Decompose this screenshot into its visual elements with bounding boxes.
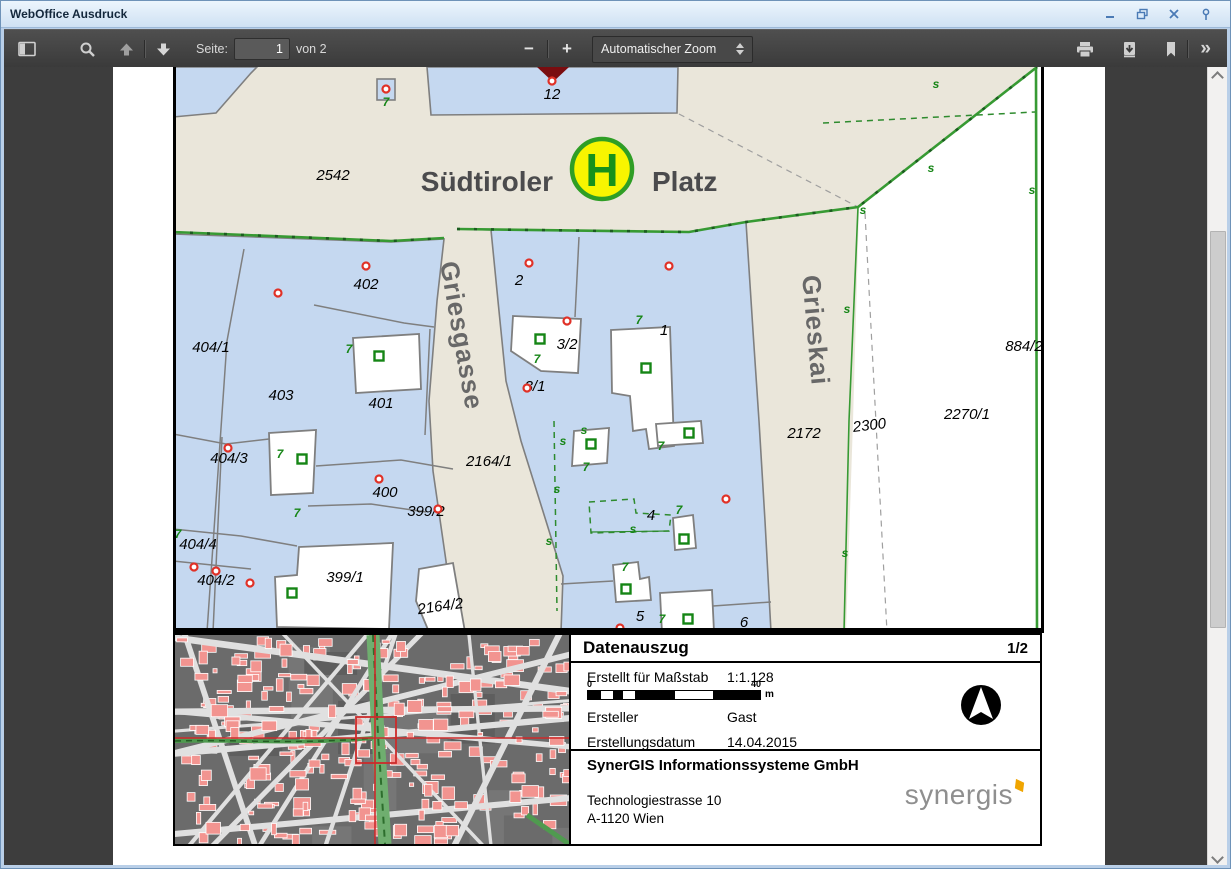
toolbar-separator <box>547 40 549 58</box>
pin-button[interactable] <box>1197 6 1215 22</box>
scale-unit: m <box>765 689 774 700</box>
panel-title: Datenauszug <box>583 638 689 658</box>
address-line-1: Technologiestrasse 10 <box>587 793 721 808</box>
scrollbar-thumb[interactable] <box>1210 231 1226 628</box>
sidebar-icon <box>18 41 37 57</box>
panel-divider <box>571 749 1040 751</box>
point-marker <box>723 496 730 503</box>
parcel-label: 5 <box>636 608 645 625</box>
survey-point-marker <box>536 335 545 344</box>
point-marker <box>191 564 198 571</box>
pin-icon <box>1200 8 1212 21</box>
logo-leaf-icon <box>1015 779 1024 792</box>
page-up-button[interactable] <box>114 37 139 62</box>
minimize-button[interactable] <box>1101 6 1119 22</box>
parcel-label: 4 <box>647 507 655 524</box>
survey-point-marker <box>684 615 693 624</box>
survey-point-marker <box>680 535 689 544</box>
land-use-symbol: s <box>860 203 867 217</box>
zoom-out-button[interactable]: − <box>516 38 542 60</box>
page-label: Seite: <box>196 42 228 56</box>
parcel-label: 1 <box>660 322 668 339</box>
parcel-label: 404/3 <box>210 450 248 467</box>
parcel-label: 399/1 <box>326 569 364 586</box>
date-label: Erstellungsdatum <box>587 734 727 750</box>
point-marker <box>524 385 531 392</box>
land-use-symbol: s <box>842 546 849 560</box>
survey-point-marker <box>587 440 596 449</box>
parcel-label: 404/1 <box>192 339 230 356</box>
parcel-label: 884/2 <box>1005 338 1043 355</box>
place-label-left: Südtiroler <box>421 166 553 197</box>
scroll-down-button[interactable] <box>1208 851 1227 865</box>
parcel-label: 2 <box>514 272 524 289</box>
parcel-label: 400 <box>372 484 398 501</box>
land-use-symbol: s <box>554 482 561 496</box>
print-icon <box>1075 41 1095 58</box>
land-use-symbol: s <box>844 302 851 316</box>
page-total: von 2 <box>296 42 327 56</box>
pdf-toolbar: Seite: von 2 − + Automatischer Zoom <box>4 29 1227 69</box>
land-use-symbol: s <box>928 161 935 175</box>
land-use-symbol: s <box>933 77 940 91</box>
overview-map <box>175 635 569 844</box>
point-marker <box>666 263 673 270</box>
parcel-label: 401 <box>368 395 393 412</box>
toolbar-separator <box>144 40 146 58</box>
logo-text: synergis <box>905 779 1013 810</box>
point-marker <box>225 445 232 452</box>
point-marker <box>213 568 220 575</box>
close-icon <box>1168 8 1180 20</box>
parcel-label: 2172 <box>786 425 821 442</box>
app-window: WebOffice Ausdruck <box>0 0 1231 869</box>
point-marker <box>435 506 442 513</box>
zoom-in-button[interactable]: + <box>554 38 580 60</box>
scroll-up-button[interactable] <box>1208 67 1227 83</box>
download-icon <box>1121 41 1138 58</box>
zoom-select-value: Automatischer Zoom <box>601 42 736 56</box>
survey-point-marker <box>288 589 297 598</box>
chevron-down-icon <box>1211 851 1224 864</box>
point-marker <box>383 86 390 93</box>
search-button[interactable] <box>75 37 100 62</box>
page-number-input[interactable] <box>234 38 290 60</box>
survey-point-marker <box>685 429 694 438</box>
toolbar-separator <box>1187 40 1189 58</box>
arrow-up-icon <box>118 41 135 58</box>
parcel-label: 12 <box>544 86 561 103</box>
point-marker <box>564 318 571 325</box>
place-label-right: Platz <box>652 166 717 197</box>
point-marker <box>376 476 383 483</box>
pdf-page-1: H Südtiroler Platz 2542124022404/13/23/1… <box>113 67 1105 865</box>
date-row: Erstellungsdatum 14.04.2015 <box>587 734 797 750</box>
date-value: 14.04.2015 <box>727 734 797 750</box>
land-use-symbol: s <box>1029 183 1036 197</box>
title-bar: WebOffice Ausdruck <box>1 1 1230 28</box>
creator-row: Ersteller Gast <box>587 709 757 725</box>
parcel-label: 3/2 <box>557 336 579 353</box>
parcel-label: 2164/1 <box>465 453 512 470</box>
survey-point-marker <box>375 352 384 361</box>
land-use-symbol: s <box>581 423 588 437</box>
parcel-label: 404/4 <box>179 536 217 553</box>
scale-bar: 0 40 m <box>587 679 807 700</box>
point-marker <box>526 260 533 267</box>
print-button[interactable] <box>1071 37 1099 62</box>
point-marker <box>363 263 370 270</box>
restore-icon <box>1136 8 1149 20</box>
sidebar-toggle-button[interactable] <box>14 37 41 61</box>
scale-end: 40 <box>751 679 761 689</box>
north-arrow <box>960 684 1002 731</box>
survey-point-marker <box>298 455 307 464</box>
bus-stop-logo: H <box>572 139 632 199</box>
land-use-symbol: s <box>630 522 637 536</box>
overview-map-box <box>173 633 571 846</box>
company-name: SynerGIS Informationssysteme GmbH <box>587 757 859 774</box>
info-panel: Datenauszug 1/2 Erstellt für Maßstab 1:1… <box>569 633 1042 846</box>
land-use-symbol: s <box>546 534 553 548</box>
close-button[interactable] <box>1165 6 1183 22</box>
restore-button[interactable] <box>1133 6 1151 22</box>
arrow-down-icon <box>155 41 172 58</box>
viewer-content: H Südtiroler Platz 2542124022404/13/23/1… <box>4 67 1227 865</box>
creator-value: Gast <box>727 709 757 725</box>
search-icon <box>79 41 96 58</box>
cadastral-map: H Südtiroler Platz 2542124022404/13/23/1… <box>173 67 1045 633</box>
panel-page-number: 1/2 <box>1007 640 1028 657</box>
parcel-label: 2270/1 <box>943 406 990 423</box>
point-marker <box>549 78 556 85</box>
scale-start: 0 <box>587 679 592 689</box>
download-button[interactable] <box>1117 37 1142 62</box>
zoom-select[interactable]: Automatischer Zoom <box>592 36 753 63</box>
more-tools-button[interactable]: » <box>1194 37 1217 61</box>
bus-stop-letter: H <box>585 144 618 196</box>
point-marker <box>275 290 282 297</box>
page-down-button[interactable] <box>151 37 176 62</box>
bookmark-button[interactable] <box>1160 37 1182 62</box>
window-title: WebOffice Ausdruck <box>10 7 127 21</box>
survey-point-marker <box>622 585 631 594</box>
creator-label: Ersteller <box>587 709 727 725</box>
address-line-2: A-1120 Wien <box>587 811 664 826</box>
parcel-label: 403 <box>268 387 294 404</box>
synergis-logo: synergis <box>905 779 1024 811</box>
chevron-up-icon <box>1211 71 1224 84</box>
minimize-icon <box>1104 8 1116 20</box>
land-use-symbol: s <box>560 434 567 448</box>
survey-point-marker <box>642 364 651 373</box>
vertical-scrollbar[interactable] <box>1207 67 1227 865</box>
select-arrows-icon <box>736 43 744 55</box>
parcel-label: 402 <box>353 276 379 293</box>
point-marker <box>247 580 254 587</box>
parcel-label: 2542 <box>315 167 350 184</box>
scale-bar-segments <box>587 690 761 700</box>
bookmark-icon <box>1164 41 1178 58</box>
